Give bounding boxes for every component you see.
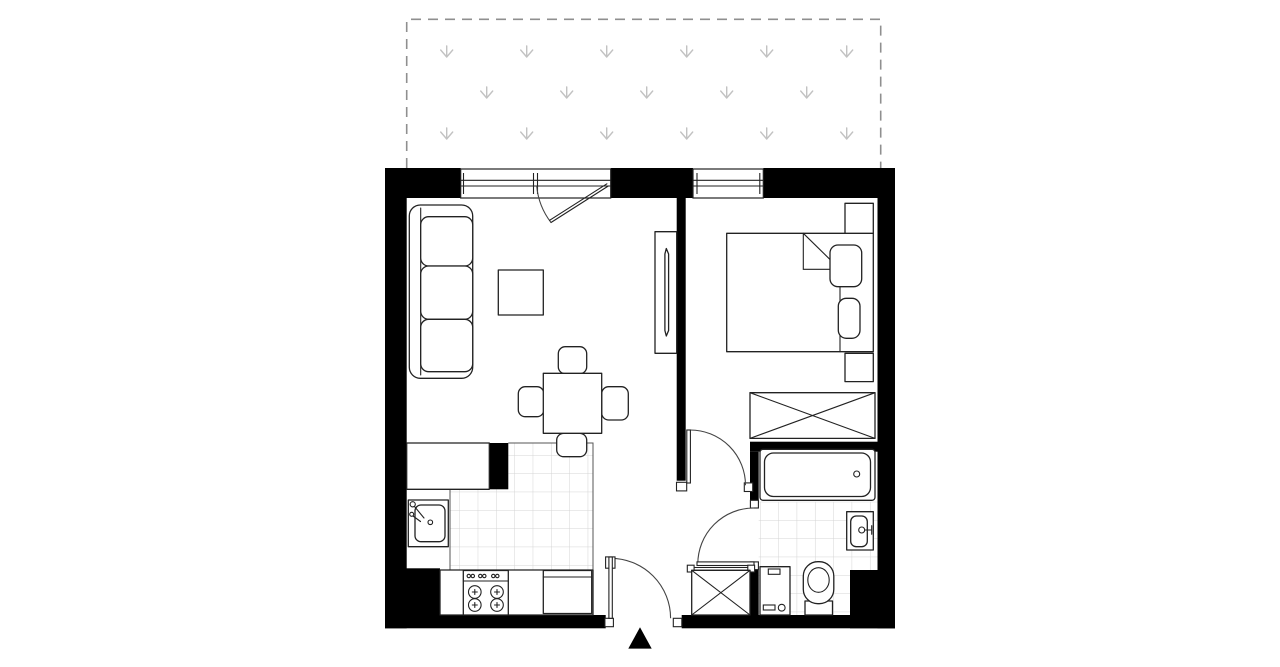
dining-table [543, 373, 601, 433]
sofa-cushion [421, 217, 473, 266]
stove [463, 571, 508, 616]
bedroom-door-leaf [687, 430, 691, 483]
wall-left [385, 168, 407, 628]
kitchen-sink [408, 500, 448, 547]
nightstand-bottom [845, 353, 873, 381]
bedroom-door-jamb-left [677, 482, 687, 491]
wall-bathroom-corner-block [850, 570, 895, 628]
washing-machine [760, 567, 790, 615]
living-room-window [461, 169, 611, 198]
sofa-cushion [421, 319, 473, 371]
entrance-door-jamb-left [605, 618, 614, 626]
wash-basin [847, 512, 874, 550]
dining-chair-right [602, 387, 629, 420]
pillow [830, 245, 862, 287]
wall-living-bedroom-divider [677, 198, 686, 481]
coffee-table [498, 270, 543, 315]
page-background [0, 0, 1280, 667]
wardrobe [750, 393, 875, 439]
bathtub [760, 449, 875, 500]
nightstand-top [845, 203, 873, 233]
bedroom-window [693, 169, 763, 198]
wall-top-right [763, 168, 895, 198]
kitchen-counter-upper [407, 443, 490, 489]
sofa-cushion [421, 266, 473, 319]
wall-right [878, 168, 896, 628]
fridge [543, 571, 591, 614]
wall-bathroom-left-upper [750, 452, 759, 508]
bathroom-door-leaf [697, 562, 754, 566]
kitchen-floor-tiles [450, 489, 593, 570]
floor-plan-canvas [0, 0, 1280, 667]
dining-chair-left [518, 387, 544, 417]
entrance-door-leaf [609, 557, 612, 618]
dining-chair-top [558, 347, 586, 374]
kitchen-sink-basin [415, 505, 445, 542]
bathtub-inner [765, 453, 871, 497]
toilet [803, 562, 834, 615]
bathroom-door-jamb-top [750, 500, 758, 508]
dining-chair-bottom [557, 433, 587, 456]
entrance-door-jamb-right [673, 618, 682, 626]
wall-bottom-left [440, 615, 606, 628]
tv-screen [665, 249, 669, 337]
wall-kitchen-stub [489, 443, 508, 489]
wall-left-bottom-block [385, 568, 440, 628]
pillow [838, 298, 860, 338]
hall-closet [687, 565, 754, 615]
wall-top-middle [611, 168, 693, 198]
